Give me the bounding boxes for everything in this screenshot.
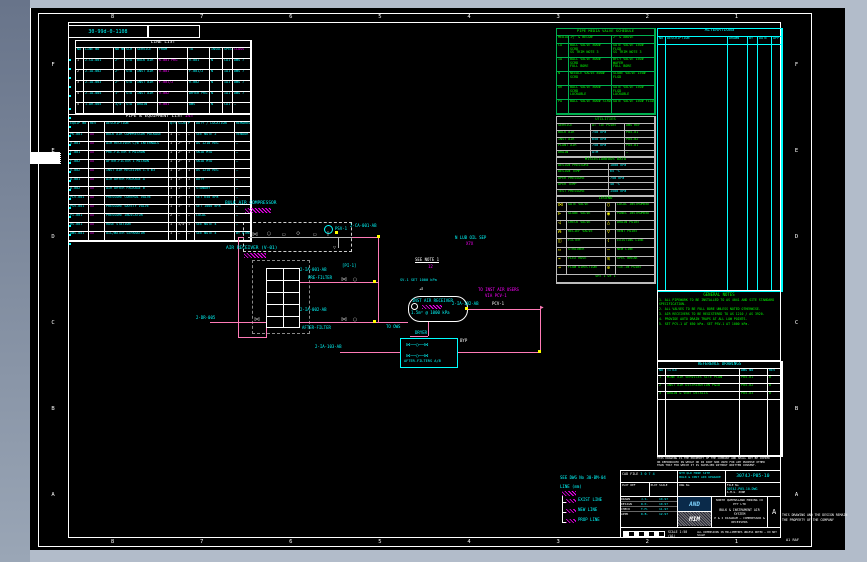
table-cell: 1 xyxy=(169,232,177,241)
grid-col-label: 7 xyxy=(157,14,246,20)
grid-row-label: F xyxy=(781,62,812,68)
diagram-label: 2-IA-001-AB xyxy=(300,268,327,272)
table-cell: DR xyxy=(557,86,569,100)
grid-row-label: B xyxy=(38,406,68,412)
diagram-label: TO OWS xyxy=(386,325,400,329)
junction-flag xyxy=(335,231,338,234)
pipe-segment xyxy=(428,322,429,336)
table-row: MEDIA1½" & BELOW2" & ABOVE xyxy=(557,36,655,44)
table-cell: DATE xyxy=(758,37,772,45)
grid-col-label: 3 xyxy=(514,14,603,20)
revision-hatch xyxy=(562,491,576,496)
table-cell: 2" xyxy=(177,160,187,169)
table-cell: STD xyxy=(125,103,136,114)
table-cell: UTILITIES xyxy=(557,117,655,124)
grid-row-label: D xyxy=(38,234,68,240)
table-cell: TIE-IN POINT xyxy=(616,266,655,275)
diagram-label: ▯ xyxy=(326,231,330,237)
table-cell: 2" xyxy=(114,70,125,81)
table-legend: LEGEND⋈GATE VALVE◯LOCAL INSTRUMENT⊳GLOBE… xyxy=(556,195,656,284)
table-cell: 1 xyxy=(169,151,177,160)
table-cell: N xyxy=(210,103,223,114)
table-cell: SKID MTD xyxy=(195,160,235,169)
cad-file-cell: CAD FILE 3 0 7 4 xyxy=(621,471,678,482)
diagram-label: AFTER-FILTER xyxy=(302,326,331,330)
table-row: ⊳GLOBE VALVE◉PANEL INSTRUMENT xyxy=(557,212,655,221)
table-cell: NEEDLE VALVE 800# SCRD xyxy=(569,72,612,86)
table-cell: SEE NOTE 4 xyxy=(195,232,235,241)
table-row: D-002XXAIR DRYER PACKAGE B11"1STANDBY— xyxy=(69,187,251,196)
table-cell: FLEX HOSE xyxy=(567,257,606,266)
table-cell: SERVICE xyxy=(557,124,591,131)
table-row: NoTITLEDWG NoREV xyxy=(658,369,782,376)
table-row: ▭STRAINER—NEW LINE xyxy=(557,248,655,257)
diagram-label: BULK AIR COMPRESSOR xyxy=(225,202,276,207)
row-tick xyxy=(69,77,71,79)
table-cell: 1 xyxy=(187,160,195,169)
grid-col-label: 2 xyxy=(603,539,692,545)
table-cell: OWS-001 xyxy=(69,232,89,241)
grid-row-label: F xyxy=(38,62,68,68)
table-cell: 1" xyxy=(114,92,125,103)
table-cell: PK-001 xyxy=(69,133,89,142)
table-cell: DESCRIPTION xyxy=(666,37,728,45)
table-cell: XX xyxy=(89,214,105,223)
grid-band-divider xyxy=(30,26,31,35)
table-cell: ⍾ xyxy=(557,230,567,239)
table-row: NOLINE NoNB mmSCHSERVICEFROMTOINSULSPECC… xyxy=(76,48,251,59)
table-cell: NB mm xyxy=(114,48,125,59)
table-cell: APP xyxy=(772,37,782,45)
table-cell: 1 xyxy=(169,160,177,169)
table-cell: SKID MTD xyxy=(195,151,235,160)
table-cell: — xyxy=(235,142,251,151)
row-tick xyxy=(69,68,71,70)
table-cell: N xyxy=(210,70,223,81)
grid-band-divider xyxy=(30,17,31,26)
table-cell: EQUIP No xyxy=(69,122,89,133)
table-cell: 1 xyxy=(169,133,177,142)
table-cell: ▽ xyxy=(606,230,616,239)
grid-band-divider xyxy=(30,71,31,80)
table-cell: STRAINER xyxy=(567,248,606,257)
table-cell: 3/4" xyxy=(177,223,187,232)
table-cell: N xyxy=(557,72,569,86)
grid-col-label: 5 xyxy=(335,539,424,545)
row-tick xyxy=(69,144,71,146)
diagram-label: 2-DR-005 xyxy=(196,316,215,320)
table-cell: DWG REF xyxy=(625,124,655,131)
diagram-label: LINE (mm) xyxy=(560,485,582,489)
table-row: V-001XXAIR RECEIVER C/W INTERNALS12"1AS … xyxy=(69,142,251,151)
diagram-label: ◯ xyxy=(353,277,357,283)
table-cell: 1 xyxy=(169,205,177,214)
table-cell: CA1 xyxy=(223,103,233,114)
table-cell: XX xyxy=(89,205,105,214)
grid-band-divider xyxy=(30,44,31,53)
diagram-label: ◇ xyxy=(296,230,300,237)
table-cell: INSUL xyxy=(210,48,223,59)
revision-hatch xyxy=(566,519,576,523)
diagram-label: SV-1 SET 1000 kPa xyxy=(400,279,437,283)
diagram-label: 2-CA-001-AB xyxy=(350,224,377,228)
table-cell: V-001 xyxy=(69,142,89,151)
junction-flag xyxy=(377,235,380,238)
table-cell: F-002 xyxy=(69,160,89,169)
table-row: CABALL VALVE 800# SCRD SS TRIM NOTE 3GAT… xyxy=(557,44,655,58)
table-row: 22-IA-0022"STDINST AIRV-001F-001/2NIA1DW… xyxy=(76,70,251,81)
pipe-segment xyxy=(338,237,339,248)
table-cell: 2" xyxy=(177,196,187,205)
table-cell: MINE AIR SERVICES SITE PLAN xyxy=(666,376,740,384)
diagram-label: NEW LINE xyxy=(578,508,597,512)
table-cell: 1 xyxy=(169,178,177,187)
table-row: NNEEDLE VALVE 800# SCRDGLOBE VALVE 150# … xyxy=(557,72,655,86)
table-cell: — xyxy=(233,103,251,114)
table-cell: SERVICE xyxy=(136,48,158,59)
table-cell: AT TIE POINT xyxy=(591,124,625,131)
diagram-label: 1.5m³ @ 1000 kPa xyxy=(411,311,450,315)
table-cell: No xyxy=(658,369,666,376)
company-logo-2: MIM xyxy=(678,512,711,526)
table-row: ◁CHECK VALVE△DRAIN POINT xyxy=(557,221,655,230)
table-row: 2INST AIR DISTRIBUTION P&IDP05-020 xyxy=(658,384,782,392)
table-row: LEGEND xyxy=(557,196,655,203)
table-cell: NO xyxy=(76,48,84,59)
pipe-segment xyxy=(410,336,428,337)
diagram-label: ▭ xyxy=(313,232,317,238)
table-cell: ⊕ xyxy=(606,266,616,275)
table-row: ⋈GATE VALVE◯LOCAL INSTRUMENT xyxy=(557,203,655,212)
sheet-ref-box-ext xyxy=(148,25,200,38)
table-cell: — xyxy=(235,151,251,160)
diagram-label: ⋈──◯──⋈ xyxy=(406,355,429,360)
table-cell xyxy=(748,45,758,291)
table-cell: MISCELLANEOUS DATA xyxy=(557,157,655,164)
table-row: ⍾RELIEF VALVE▽VENT POINT xyxy=(557,230,655,239)
table-row: 12-CA-0012"STDBULK AIRK-001 PKGV-001NCA1… xyxy=(76,59,251,70)
drawing-number-header: 3074J-P05-10 xyxy=(726,471,780,482)
diagram-label: SEE DWG No 30-BM-04 xyxy=(560,476,606,480)
table-cell: 2-IA-002 xyxy=(84,70,114,81)
grid-band-divider xyxy=(30,53,31,62)
grid-col-label: 2 xyxy=(603,14,692,20)
table-cell: AS 1210 REG xyxy=(195,142,235,151)
table-cell: PIPE MEDIA VALVE SCHEDULE xyxy=(557,29,655,36)
table-cell: SIZE xyxy=(177,122,187,133)
diagram-label: INST AIR RECEIVER xyxy=(412,299,453,303)
table-cell: D-001 xyxy=(69,178,89,187)
table-cell: AIR DRYER PACKAGE A xyxy=(105,178,169,187)
table-cell: — xyxy=(235,178,251,187)
table-cell: REMARKS xyxy=(235,122,251,133)
diagram-label: AIR RECEIVER (V-01) xyxy=(226,247,277,252)
table-cell: LINE LIST xyxy=(76,41,251,48)
table-cell: HS-001 xyxy=(69,223,89,232)
table-cell: INST AIR xyxy=(136,92,158,103)
table-cell: LOCAL INSTRUMENT xyxy=(616,203,655,212)
table-cell: BFLY VALVE 150# WAFER FULL BORE xyxy=(612,58,655,72)
table-cell: DRAIN POINT xyxy=(616,221,655,230)
diagram-label: PRE-FILTER xyxy=(308,276,332,280)
diagram-label: ⋈ xyxy=(252,232,258,238)
table-reference-drawings: REFERENCE DRAWINGSNoTITLEDWG NoREV1MINE … xyxy=(657,361,783,457)
row-tick xyxy=(69,243,71,245)
row-tick xyxy=(69,108,71,110)
pipe-segment xyxy=(378,237,379,323)
diagram-label: TO INST AIR USERS xyxy=(478,288,519,292)
table-row: PIPE MEDIA VALVE SCHEDULE xyxy=(557,29,655,36)
row-tick xyxy=(69,216,71,218)
revision-hatch xyxy=(566,499,576,503)
table-cell: ◫ xyxy=(557,239,567,248)
table-cell: SEE NOTE 2 xyxy=(195,133,235,142)
table-cell: PI-001 xyxy=(69,214,89,223)
table-cell xyxy=(728,45,748,291)
grid-row-label: D xyxy=(781,234,812,240)
table-cell: BULK AIR COMPRESSOR PACKAGE xyxy=(105,133,169,142)
table-cell: PA xyxy=(557,100,569,114)
table-row: SHT 1 OF 1 xyxy=(557,275,655,283)
grid-col-label: 8 xyxy=(68,539,157,545)
table-line-list: LINE LISTNOLINE NoNB mmSCHSERVICEFROMTOI… xyxy=(75,40,252,115)
table-valve-spec: PIPE MEDIA VALVE SCHEDULEMEDIA1½" & BELO… xyxy=(556,28,656,115)
table-row: SERVICEAT TIE POINTDWG REF xyxy=(557,124,655,131)
pipe-segment xyxy=(352,237,378,238)
table-cell: OWS xyxy=(188,103,210,114)
table-cell: — xyxy=(187,133,195,142)
table-cell: EXISTING LINE xyxy=(616,239,655,248)
grid-row-label: C xyxy=(38,320,68,326)
table-cell: SCH xyxy=(125,48,136,59)
table-cell: 1 xyxy=(169,196,177,205)
table-equipment-list: PIPE & EQUIPMENT LIST 24TEQUIP NoREVDESC… xyxy=(68,114,252,242)
grid-band-divider xyxy=(30,125,31,134)
table-cell: 2" xyxy=(177,151,187,160)
table-cell: NEW LINE xyxy=(616,248,655,257)
table-cell: BULK AIR xyxy=(136,59,158,70)
diagram-label: ◯ xyxy=(267,231,271,237)
cad-viewport[interactable]: 30-99d-0-1108 CAD FILE 3 0 7 4 NTH QLD M… xyxy=(30,8,845,550)
row-tick xyxy=(69,207,71,209)
table-cell: INST AIR xyxy=(136,81,158,92)
table-row: REFERENCE DRAWINGS xyxy=(658,362,782,369)
grid-row-label: E xyxy=(38,148,68,154)
grid-band-divider xyxy=(30,62,31,71)
table-row: OWS-001XXOIL/WATER SEPARATOR1——SEE NOTE … xyxy=(69,232,251,241)
table-cell: STD xyxy=(125,92,136,103)
table-cell: TITLE xyxy=(666,369,740,376)
table-cell: ◯ xyxy=(606,203,616,212)
diagram-label: N LUB OIL SEP xyxy=(455,236,486,240)
table-cell: LOCAL xyxy=(195,214,235,223)
table-cell xyxy=(666,400,740,456)
diagram-label: ▭ xyxy=(282,232,286,238)
diagram-label: ▽ xyxy=(333,246,336,251)
general-note-item: 1. ALL PIPEWORK TO BE INSTALLED TO AS 40… xyxy=(659,298,779,306)
table-cell: 2" xyxy=(177,142,187,151)
file-no-cell: FILE No 3074J-P05-10.DWG A.M.G. ZONE xyxy=(726,483,780,496)
table-cell: △ xyxy=(606,221,616,230)
diagram-label: 2-IA-002-AB xyxy=(300,308,327,312)
diagram-label: ⊿ xyxy=(419,287,423,292)
diagram-label: 12 xyxy=(428,265,433,269)
table-row: PI-001XXPRESSURE INDICATOR2——LOCAL— xyxy=(69,214,251,223)
table-cell: GATE VALVE xyxy=(567,203,606,212)
general-note-item: 5. SET PCV-1 AT 650 kPa. SET PSV-1 AT 10… xyxy=(659,322,779,326)
table-row: EQUIP NoREVDESCRIPTIONQTYSIZEPDUTY / LOC… xyxy=(69,122,251,133)
grid-col-label: 6 xyxy=(246,539,335,545)
grid-band-divider xyxy=(30,8,31,17)
table-row: 51-DR-0053/4"STDDRAINV-001OWSNCA1— xyxy=(76,103,251,114)
table-cell: XX xyxy=(89,160,105,169)
table-cell: AIR RECEIVER C/W INTERNALS xyxy=(105,142,169,151)
row-tick xyxy=(69,126,71,128)
table-row: F-001XXPRE-FILTER 5 MICRON12"1SKID MTD— xyxy=(69,151,251,160)
table-cell: XX xyxy=(89,169,105,178)
general-notes: GENERAL NOTES1. ALL PIPEWORK TO BE INSTA… xyxy=(657,290,781,361)
table-cell: V-001 xyxy=(188,59,210,70)
grid-col-label: 7 xyxy=(157,539,246,545)
diagram-label: [PI-1] xyxy=(342,264,356,268)
table-cell: VENDOR xyxy=(235,133,251,142)
table-cell: 2 xyxy=(658,384,666,392)
table-cell: K-001 PKG xyxy=(158,59,188,70)
row-tick xyxy=(69,189,71,191)
diagram-label: 2-IA-102-AB xyxy=(452,302,479,306)
diagram-label: ◯ xyxy=(353,317,357,323)
table-cell: BY xyxy=(748,37,758,45)
table-cell: REV xyxy=(89,122,105,133)
instrument-bubble xyxy=(411,303,418,310)
table-cell: 1" xyxy=(177,178,187,187)
scale-bar xyxy=(623,531,665,537)
table-cell: SHT 1 OF 1 xyxy=(557,275,655,283)
table-cell: IA xyxy=(557,58,569,72)
general-note-item: 2. ALL VALVES TO BE FULL BORE UNLESS NOT… xyxy=(659,307,779,311)
table-cell: LEGEND xyxy=(557,196,655,203)
row-tick xyxy=(69,135,71,137)
table-cell: 1 xyxy=(658,376,666,384)
table-cell: 1 xyxy=(169,142,177,151)
grid-band-divider xyxy=(30,35,31,44)
table-cell: ⍉ xyxy=(606,257,616,266)
table-row: LINE LIST xyxy=(76,41,251,48)
table-cell: — xyxy=(187,214,195,223)
rev-cell: A xyxy=(768,497,780,527)
table-cell: 2-CA-001 xyxy=(84,59,114,70)
table-cell: CA1 xyxy=(223,59,233,70)
table-row: ◫FILTER⌇EXISTING LINE xyxy=(557,239,655,248)
table-cell: XX xyxy=(89,178,105,187)
table-cell: AS 1210 REG xyxy=(195,169,235,178)
table-row: 3DRAIN & VENT DETAILSP05-030 xyxy=(658,392,782,400)
table-cell: V-001 xyxy=(158,103,188,114)
table-cell: — xyxy=(177,232,187,241)
table-cell: F-001 xyxy=(69,151,89,160)
row-tick xyxy=(69,234,71,236)
disclaimer-line: THAN THAT FOR WHICH IT IS SUPPLIED WITHO… xyxy=(657,464,781,468)
table-cell: PRESSURE INDICATOR xyxy=(105,214,169,223)
window-left-strip xyxy=(0,0,30,562)
table-cell xyxy=(768,400,782,456)
row-tick xyxy=(69,95,71,97)
junction-flag xyxy=(465,307,468,310)
table-cell: DWG 7 xyxy=(233,92,251,103)
table-cell: — xyxy=(235,187,251,196)
pipe-segment xyxy=(468,309,540,310)
table-cell: 1 xyxy=(187,223,195,232)
table-cell: P xyxy=(187,122,195,133)
junction-flag xyxy=(373,280,376,283)
table-cell: BALL VALVE 800# SCRD LOCKABLE xyxy=(569,86,612,100)
table-cell: TO xyxy=(188,48,210,59)
diagram-label: PROP LINE xyxy=(578,518,600,522)
pipe-segment xyxy=(248,237,352,238)
table-cell: IA1 xyxy=(223,81,233,92)
table-cell: 1 xyxy=(187,169,195,178)
table-cell: DUTY / LOCATION xyxy=(195,122,235,133)
pipe-segment xyxy=(458,352,540,353)
table-row: HS-001XXHOSE STATION13/4"1SEE NOTE 4— xyxy=(69,223,251,232)
table-cell xyxy=(758,45,772,291)
table-cell: V-002 xyxy=(188,81,210,92)
table-row: DRBALL VALVE 800# SCRD LOCKABLEGATE VALV… xyxy=(557,86,655,100)
table-cell: — xyxy=(235,223,251,232)
diagram-label: VIA PCV-1 xyxy=(485,294,507,298)
table-cell: 1 xyxy=(169,169,177,178)
table-cell: REV xyxy=(768,369,782,376)
revision-hatch xyxy=(566,509,576,513)
company-logo-1: AND xyxy=(678,497,711,512)
row-tick xyxy=(69,59,71,61)
title-block: CAD FILE 3 0 7 4 NTH QLD MINE SITEBULK &… xyxy=(620,470,781,538)
table-cell: IA1 xyxy=(223,92,233,103)
table-cell: ALTERATIONS xyxy=(658,29,782,37)
table-cell: ▭ xyxy=(557,248,567,257)
project-cell: NTH QLD MINE SITEBULK & INST AIR UPGRADE xyxy=(678,471,725,482)
table-row: D-001XXAIR DRYER PACKAGE A11"1DUTY— xyxy=(69,178,251,187)
table-cell: RELIEF VALVE xyxy=(567,230,606,239)
table-row: PABALL VALVE 800# SCRDGATE VALVE 150# FL… xyxy=(557,100,655,114)
sheet-ref: 30-99d-0-1108 xyxy=(88,29,127,35)
table-cell: CA xyxy=(557,44,569,58)
table-cell: MEDIA xyxy=(557,36,569,44)
table-cell: DWG 7 xyxy=(233,70,251,81)
table-cell: GLOBE VALVE 150# FLGD xyxy=(612,72,655,86)
table-cell: INST AIR DISTRIBUTION P&ID xyxy=(666,384,740,392)
table-cell: V-002 xyxy=(69,169,89,178)
table-row: PIPE & EQUIPMENT LIST 24T xyxy=(69,115,251,122)
table-cell: F-001/2 xyxy=(158,81,188,92)
table-cell: AIR DRYER PACKAGE B xyxy=(105,187,169,196)
table-cell: XX xyxy=(89,196,105,205)
table-cell: STANDBY xyxy=(195,187,235,196)
table-cell: STD xyxy=(125,59,136,70)
table-cell: N xyxy=(210,81,223,92)
table-row: F-002XXAFTER-FILTER 1 MICRON12"1SKID MTD… xyxy=(69,160,251,169)
grid-col-label: 6 xyxy=(246,14,335,20)
table-cell: — xyxy=(177,214,187,223)
table-cell: N xyxy=(210,92,223,103)
junction-flag xyxy=(373,320,376,323)
air-receiver-vessel xyxy=(266,268,300,328)
table-cell: FROM xyxy=(158,48,188,59)
table-cell: LINE No xyxy=(84,48,114,59)
diagram-label: BYP xyxy=(460,339,467,343)
table-row: IABALL VALVE 800# SCRD FULL BOREBFLY VAL… xyxy=(557,58,655,72)
table-cell: 1 xyxy=(187,196,195,205)
